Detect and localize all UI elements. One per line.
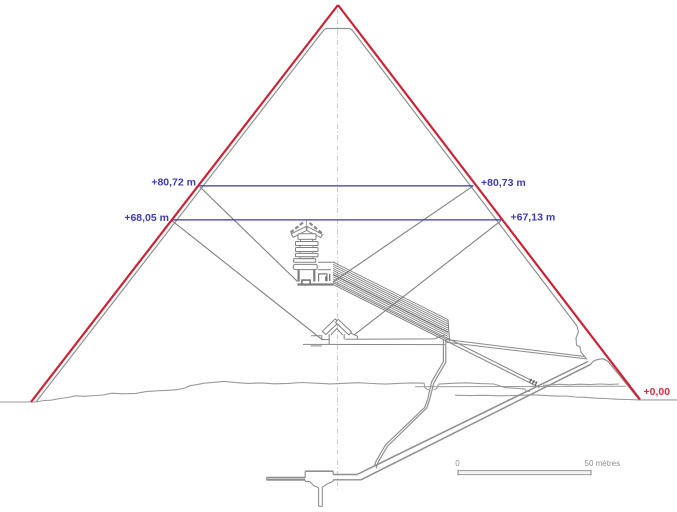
- svg-text:+68,05 m: +68,05 m: [124, 212, 169, 224]
- svg-text:0: 0: [455, 459, 460, 468]
- svg-text:+80,72 m: +80,72 m: [151, 176, 196, 188]
- svg-text:+67,13 m: +67,13 m: [511, 212, 556, 224]
- svg-text:+80,73 m: +80,73 m: [481, 177, 526, 189]
- svg-text:50 mètres: 50 mètres: [585, 459, 621, 468]
- svg-text:+0,00: +0,00: [644, 386, 671, 398]
